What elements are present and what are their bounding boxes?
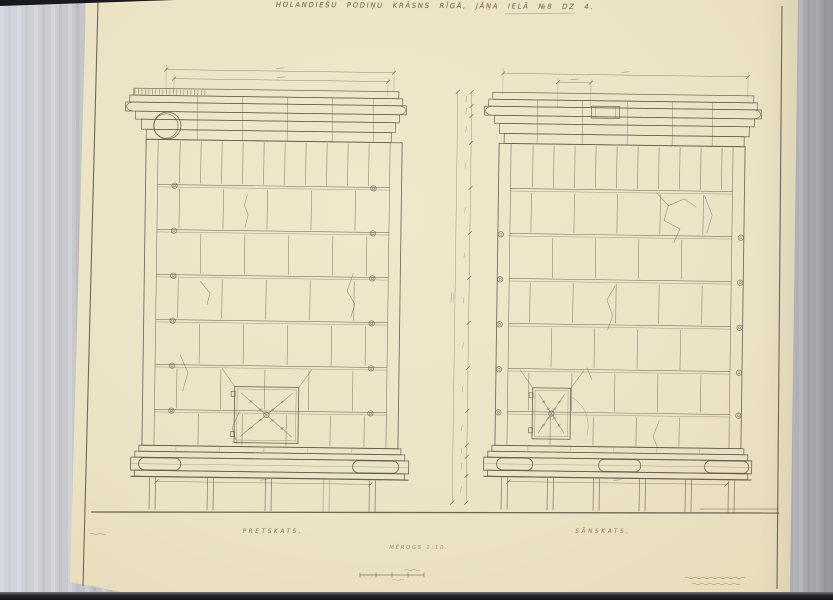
sheet-annotations <box>90 13 745 585</box>
front-view-label: PRETSKATS. <box>213 529 333 535</box>
scan-edge-bottom <box>0 592 833 600</box>
scanned-drawing-page: HOLANDIEŠU PODIŅU KRĀSNS RĪGĀ, JĀŅA IELĀ… <box>0 0 833 600</box>
stove-elevations-drawing <box>0 0 833 600</box>
sheet-border-frame <box>83 2 782 589</box>
scale-label: MĒROGS 1:10. <box>359 545 479 551</box>
side-elevation <box>448 68 762 513</box>
front-elevation <box>120 64 414 513</box>
side-view-label: SĀNSKATS. <box>543 529 663 535</box>
